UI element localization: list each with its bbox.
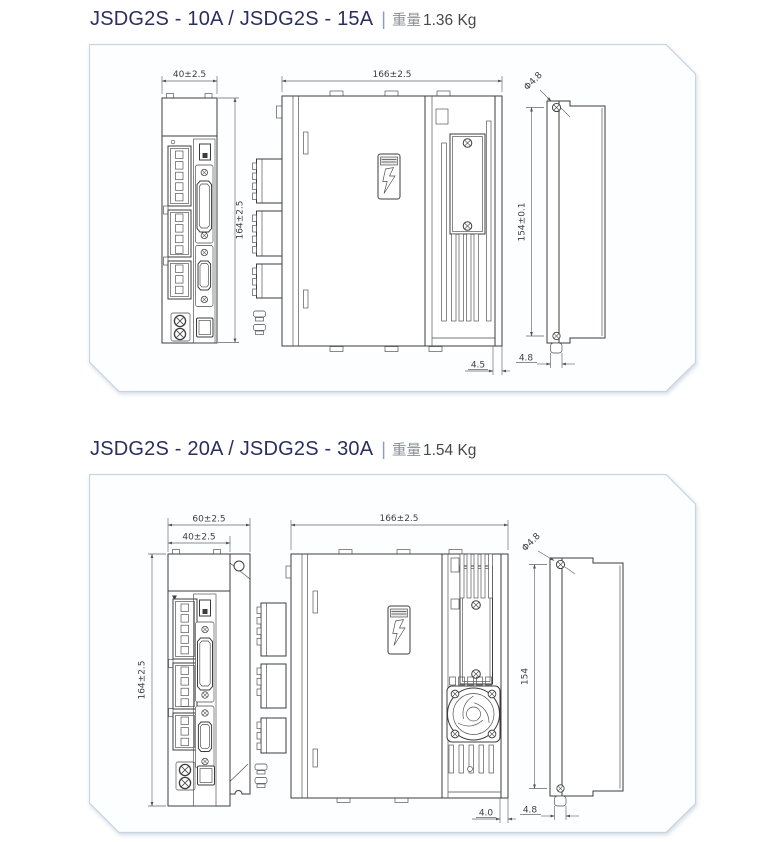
dim-front-height-label: 164±2.5 bbox=[236, 200, 246, 239]
side-view: 166±2.5 bbox=[253, 70, 511, 375]
terminal-blocks bbox=[164, 146, 192, 299]
weight-value: 1.54 Kg bbox=[423, 442, 476, 459]
section-jsdg2s-20a-30a: JSDG2S - 20A / JSDG2S - 30A|重量1.54 Kg 60… bbox=[0, 437, 778, 833]
weight-label: 重量 bbox=[392, 443, 421, 459]
dimension-drawing-20a-30a: 60±2.5 40±2.5 164±2.5 bbox=[89, 474, 696, 833]
dim-rear-pitch-label: 154±0.1 bbox=[518, 202, 528, 241]
dim-front-width-label: 40±2.5 bbox=[182, 533, 215, 543]
dim-front-outer-width-label: 60±2.5 bbox=[192, 515, 225, 525]
mounting-bracket bbox=[547, 101, 605, 343]
section-title: JSDG2S - 20A / JSDG2S - 30A|重量1.54 Kg bbox=[90, 437, 778, 464]
title-separator: | bbox=[381, 9, 386, 29]
mounting-tab bbox=[555, 796, 567, 806]
dim-rear-pitch-label: 154 bbox=[521, 668, 531, 685]
fan-hub bbox=[467, 707, 481, 721]
weight-value: 1.36 Kg bbox=[423, 12, 476, 29]
warning-label bbox=[378, 154, 400, 199]
terminal-blocks bbox=[169, 599, 198, 750]
side-view: 166±2.5 bbox=[255, 514, 516, 823]
dim-front-height-label: 164±2.5 bbox=[138, 660, 148, 699]
dim-side-depth-label: 166±2.5 bbox=[372, 70, 411, 80]
model-names: JSDG2S - 20A / JSDG2S - 30A bbox=[90, 438, 373, 460]
top-cap bbox=[168, 554, 230, 591]
dim-rear-tab-label: 4.8 bbox=[523, 806, 538, 816]
mounting-bracket bbox=[550, 558, 623, 796]
dim-rear-tab-label: 4.8 bbox=[519, 354, 534, 364]
title-separator: | bbox=[381, 439, 386, 459]
dim-front-width-label: 40±2.5 bbox=[173, 70, 206, 80]
top-cap bbox=[162, 98, 217, 136]
dim-side-offset-label: 4.5 bbox=[471, 361, 485, 371]
mounting-tab bbox=[551, 343, 563, 353]
warning-label bbox=[388, 606, 410, 654]
model-names: JSDG2S - 10A / JSDG2S - 15A bbox=[90, 8, 373, 30]
dim-side-depth-label: 166±2.5 bbox=[379, 514, 418, 524]
section-title: JSDG2S - 10A / JSDG2S - 15A|重量1.36 Kg bbox=[90, 7, 778, 34]
mounting-hole bbox=[234, 561, 244, 571]
weight-label: 重量 bbox=[392, 13, 421, 29]
dim-side-offset-label: 4.0 bbox=[479, 809, 494, 819]
section-jsdg2s-10a-15a: JSDG2S - 10A / JSDG2S - 15A|重量1.36 Kg 40… bbox=[0, 7, 778, 392]
heatsink-plate bbox=[450, 134, 485, 234]
dimension-drawing-10a-15a: 40±2.5 164±2.5 bbox=[89, 44, 696, 392]
